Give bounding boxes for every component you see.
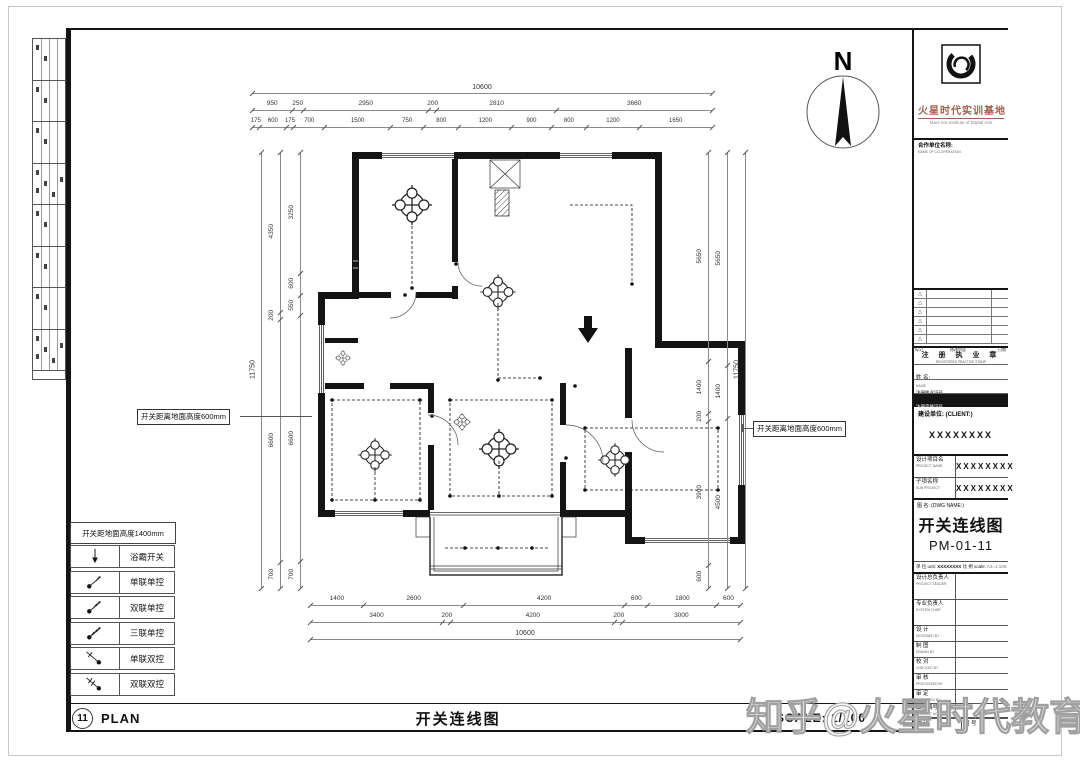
leader-line-right bbox=[742, 428, 753, 429]
cooperation-label-en: NAME OF CO-OPERATION. bbox=[918, 150, 995, 154]
floor-plan bbox=[240, 70, 770, 670]
legend-item: 双联双控 bbox=[70, 673, 174, 696]
dwg-section: 图 名: (DWG NAME:) 开关连线图 PM-01-11 bbox=[914, 500, 1008, 562]
legend-item: 单联双控 bbox=[70, 647, 174, 670]
watermark: 知乎@火星时代教育 bbox=[746, 686, 1080, 741]
dwg-label: 图 名: (DWG NAME:) bbox=[917, 502, 1005, 509]
brand-english: Mars era Institute of Digital Arts bbox=[919, 120, 1004, 125]
client-value: XXXXXXXX bbox=[918, 430, 1004, 440]
legend-label: 单联双控 bbox=[119, 647, 175, 670]
legend-item: 单联单控 bbox=[70, 571, 174, 594]
dwg-number: PM-01-11 bbox=[917, 538, 1005, 553]
project-label-en: PROJECT NAME bbox=[916, 464, 951, 468]
project-value: XXXXXXXX bbox=[956, 462, 1008, 471]
revision-row: △ bbox=[914, 290, 1008, 299]
legend-label: 单联单控 bbox=[119, 571, 175, 594]
project-row: 设计项目名 PROJECT NAME XXXXXXXX bbox=[914, 456, 1008, 478]
stamp-section: 注 册 执 业 章 REGISTERED PRACTICE STAMP 姓 名:… bbox=[914, 348, 1008, 406]
fixtures bbox=[353, 160, 520, 268]
revision-row: △ bbox=[914, 317, 1008, 326]
leader-line-left bbox=[240, 416, 312, 417]
bath-heater-arrow-icon bbox=[70, 545, 120, 568]
cooperation-label-cn: 合作单位名称: bbox=[918, 143, 1004, 150]
unit-value: XXXXXXXX bbox=[937, 564, 961, 569]
stamp-title-cn: 注 册 执 业 章 bbox=[914, 350, 1008, 360]
client-section: 建设单位: (CLIENT:) XXXXXXXX bbox=[914, 406, 1008, 456]
switch-height-note-left: 开关距离地面高度600mm bbox=[137, 409, 230, 425]
revision-row: △ bbox=[914, 299, 1008, 308]
single-gang-double-icon bbox=[70, 647, 120, 670]
switch-legend: 开关距地面高度1400mm 浴霸开关单联单控双联单控三联单控单联双控双联双控 bbox=[68, 520, 180, 700]
double-gang-single-icon bbox=[70, 596, 120, 619]
legend-label: 双联双控 bbox=[119, 673, 175, 696]
meta-row: 单 位 unit: XXXXXXXX 比 例 scale: A3=1:100 bbox=[914, 562, 1008, 574]
signoff-row: 制 图DRAWN BY bbox=[914, 642, 1008, 658]
legend-label: 浴霸开关 bbox=[119, 545, 175, 568]
scale-value: A3=1:100 bbox=[987, 564, 1006, 569]
revision-row: △ bbox=[914, 308, 1008, 317]
signoff-row: 校 对CHECKED BY bbox=[914, 658, 1008, 674]
dwg-name: 开关连线图 bbox=[917, 512, 1005, 536]
brand-logo bbox=[941, 44, 981, 84]
legend-item: 双联单控 bbox=[70, 596, 174, 619]
cooperation-section: 合作单位名称: NAME OF CO-OPERATION. bbox=[914, 140, 1008, 290]
legend-header: 开关距地面高度1400mm bbox=[70, 522, 176, 544]
subproject-label-en: SUB PROJECT bbox=[916, 486, 951, 490]
brand-section: 火星时代实训基地 Mars era Institute of Digital A… bbox=[914, 30, 1008, 140]
revision-table: △△△△△△标记 修改内容 日期 bbox=[914, 290, 1008, 348]
drawing-title: 开关连线图 bbox=[140, 708, 776, 729]
scale-label: 比 例 scale: bbox=[963, 564, 986, 569]
single-gang-single-icon bbox=[70, 571, 120, 594]
leader-tick-right bbox=[742, 424, 743, 432]
legend-label: 三联单控 bbox=[119, 622, 175, 645]
balcony bbox=[416, 517, 576, 575]
signoff-row: 专业负责人SYSTEM CHIEF bbox=[914, 600, 1008, 626]
revision-row: △ bbox=[914, 326, 1008, 335]
north-needle bbox=[835, 77, 851, 146]
revision-row: △ bbox=[914, 335, 1008, 344]
signoff-row: 设计总负责人PROJECT LEADER bbox=[914, 574, 1008, 600]
north-arrow: N bbox=[788, 40, 898, 155]
plan-label: PLAN bbox=[101, 711, 140, 726]
north-label: N bbox=[834, 46, 853, 76]
legend-label: 双联单控 bbox=[119, 596, 175, 619]
drawing-index-strip bbox=[32, 38, 66, 380]
sheet-number-badge: 11 bbox=[72, 708, 93, 729]
client-label: 建设单位: (CLIENT:) bbox=[918, 409, 1004, 418]
walls bbox=[318, 152, 745, 544]
subproject-row: 子项名称 SUB PROJECT XXXXXXXX bbox=[914, 478, 1008, 500]
legend-item: 浴霸开关 bbox=[70, 545, 174, 568]
unit-label: 单 位 unit: bbox=[916, 564, 936, 569]
title-block: 火星时代实训基地 Mars era Institute of Digital A… bbox=[912, 30, 1008, 732]
subproject-label-cn: 子项名称 bbox=[916, 479, 955, 486]
subproject-value: XXXXXXXX bbox=[956, 484, 1008, 493]
legend-item: 三联单控 bbox=[70, 622, 174, 645]
switch-height-note-right: 开关距离地面高度600mm bbox=[753, 421, 846, 437]
double-gang-double-icon bbox=[70, 673, 120, 696]
brand-name: 火星时代实训基地 bbox=[918, 102, 1004, 119]
signoff-row: 设 计DESIGNED BY bbox=[914, 626, 1008, 642]
entrance-arrow bbox=[578, 316, 598, 343]
triple-gang-single-icon bbox=[70, 622, 120, 645]
project-label-cn: 设计项目名 bbox=[916, 457, 955, 464]
